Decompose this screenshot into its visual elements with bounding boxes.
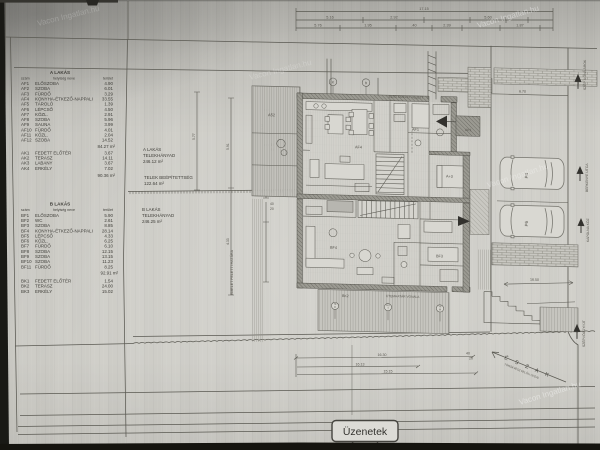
svg-text:KÖZL.: KÖZL. (35, 132, 48, 138)
svg-text:ELŐSZOBA: ELŐSZOBA (35, 212, 59, 218)
svg-text:15.15: 15.15 (384, 370, 393, 374)
svg-text:TELEK BEÉPÍTETTSÉG: TELEK BEÉPÍTETTSÉG (144, 174, 193, 180)
svg-text:KAPOLNA KÖZ: KAPOLNA KÖZ (586, 218, 590, 242)
svg-text:BF3: BF3 (436, 254, 443, 258)
svg-text:16.30: 16.30 (378, 353, 387, 357)
svg-text:5.76: 5.76 (314, 24, 321, 28)
svg-text:5.77: 5.77 (192, 133, 196, 140)
svg-text:helyiség neve: helyiség neve (53, 77, 75, 81)
svg-text:2.92: 2.92 (390, 16, 397, 20)
svg-text:B LAKÁS: B LAKÁS (142, 206, 161, 212)
svg-text:5.16: 5.16 (326, 16, 333, 20)
svg-text:helyiség neve: helyiség neve (53, 208, 75, 212)
svg-text:KONYHA-ÉTKEZŐ-NAPPALI: KONYHA-ÉTKEZŐ-NAPPALI (35, 227, 93, 233)
svg-text:BF4: BF4 (330, 246, 337, 250)
svg-text:BK2: BK2 (342, 294, 349, 298)
svg-text:SZÉP ILONA ÁROK: SZÉP ILONA ÁROK (582, 59, 587, 90)
svg-text:4.33: 4.33 (226, 238, 230, 245)
svg-text:ERKÉLY: ERKÉLY (35, 288, 52, 294)
svg-text:7.02: 7.02 (104, 166, 113, 171)
svg-text:terület: terület (103, 77, 113, 81)
svg-text:M: M (439, 307, 441, 311)
svg-text:122.64 m²: 122.64 m² (144, 181, 165, 186)
svg-text:40: 40 (466, 352, 470, 356)
svg-text:TELEKHÁNYAD: TELEKHÁNYAD (142, 212, 174, 218)
svg-text:84.27 m²: 84.27 m² (97, 144, 115, 149)
svg-text:SZÉPVÖLGYI ÚT: SZÉPVÖLGYI ÚT (581, 320, 586, 347)
svg-text:A LAKÁS: A LAKÁS (50, 69, 70, 75)
svg-text:LÉPCSŐ: LÉPCSŐ (35, 232, 54, 238)
svg-text:AK1: AK1 (465, 128, 472, 132)
svg-text:FÜRDŐ: FÜRDŐ (35, 90, 51, 96)
svg-text:EMELET FELETTI HATÁRA: EMELET FELETTI HATÁRA (230, 249, 234, 295)
svg-text:20: 20 (270, 207, 274, 211)
svg-text:16.50: 16.50 (530, 278, 539, 282)
svg-text:Vacon Ingatlan.hu: Vacon Ingatlan.hu (518, 380, 582, 407)
svg-text:2.39: 2.39 (443, 24, 450, 28)
svg-text:AF1: AF1 (412, 128, 419, 132)
svg-text:AF4: AF4 (355, 145, 362, 149)
svg-text:A52: A52 (268, 112, 276, 117)
svg-text:Üzenetek: Üzenetek (343, 426, 388, 438)
svg-text:terület: terület (103, 208, 113, 212)
svg-text:ELŐSZOBA: ELŐSZOBA (35, 80, 59, 86)
svg-text:LÉPCSŐ: LÉPCSŐ (35, 106, 54, 112)
svg-text:.40: .40 (411, 24, 416, 28)
svg-text:AF12: AF12 (21, 138, 32, 143)
svg-text:FEDETT ELŐTÉR: FEDETT ELŐTÉR (35, 277, 71, 283)
svg-text:20: 20 (469, 357, 473, 361)
svg-text:FÜRDŐ: FÜRDŐ (35, 263, 51, 269)
svg-text:K: K (332, 80, 335, 84)
svg-text:6.70: 6.70 (519, 89, 526, 93)
svg-text:Vacon Ingatlan.hu: Vacon Ingatlan.hu (36, 4, 100, 28)
svg-text:SZOBA: SZOBA (35, 138, 50, 143)
svg-text:BK3: BK3 (21, 289, 30, 294)
svg-text:1.87: 1.87 (516, 24, 523, 28)
svg-text:TELEKHÁNYAD: TELEKHÁNYAD (143, 152, 175, 158)
svg-text:TÁROLÓ: TÁROLÓ (35, 101, 54, 107)
svg-text:FEDETT ELŐTÉR: FEDETT ELŐTÉR (35, 149, 71, 155)
svg-text:90.36 m²: 90.36 m² (97, 173, 115, 178)
svg-text:92.91 m²: 92.91 m² (100, 270, 118, 275)
svg-text:5.91: 5.91 (226, 143, 230, 150)
svg-text:BF11: BF11 (21, 264, 32, 269)
svg-text:szám: szám (21, 77, 30, 81)
svg-text:szám: szám (21, 208, 30, 212)
svg-text:14.52: 14.52 (102, 138, 114, 143)
svg-text:B: B (365, 81, 368, 85)
svg-text:ÜTEMHATÁR VONALA: ÜTEMHATÁR VONALA (386, 294, 420, 299)
svg-text:8.25: 8.25 (104, 264, 113, 269)
svg-text:A LAKÁS: A LAKÁS (143, 146, 161, 152)
svg-text:17.15: 17.15 (419, 7, 429, 11)
svg-text:FÜRDŐ: FÜRDŐ (35, 243, 51, 249)
svg-text:KÖZL.: KÖZL. (35, 238, 48, 244)
svg-text:AK4: AK4 (21, 166, 30, 171)
svg-text:BERKENYE UTCA: BERKENYE UTCA (585, 163, 589, 192)
svg-text:FÜRDŐ: FÜRDŐ (35, 126, 51, 132)
svg-text:P6: P6 (524, 220, 529, 226)
svg-text:ERKÉLY: ERKÉLY (35, 165, 52, 171)
svg-text:KÖZL.: KÖZL. (35, 111, 48, 117)
svg-text:40: 40 (270, 202, 274, 206)
svg-text:R: R (334, 305, 336, 309)
svg-text:16.13: 16.13 (356, 363, 365, 367)
svg-text:A+3: A+3 (446, 175, 453, 179)
svg-text:ELSŐ EMELET FELETT: ELSŐ EMELET FELETT (389, 94, 424, 100)
svg-text:246.25 m²: 246.25 m² (142, 219, 163, 224)
svg-text:15.02: 15.02 (102, 289, 114, 294)
svg-text:Vacon Ingatlan.hu: Vacon Ingatlan.hu (248, 58, 312, 82)
svg-text:1.95: 1.95 (364, 24, 371, 28)
svg-text:KONYHA-ÉTKEZŐ-NAPPALI: KONYHA-ÉTKEZŐ-NAPPALI (35, 95, 93, 101)
svg-text:246.12 m²: 246.12 m² (143, 159, 164, 164)
svg-text:B LAKÁS: B LAKÁS (50, 201, 70, 207)
